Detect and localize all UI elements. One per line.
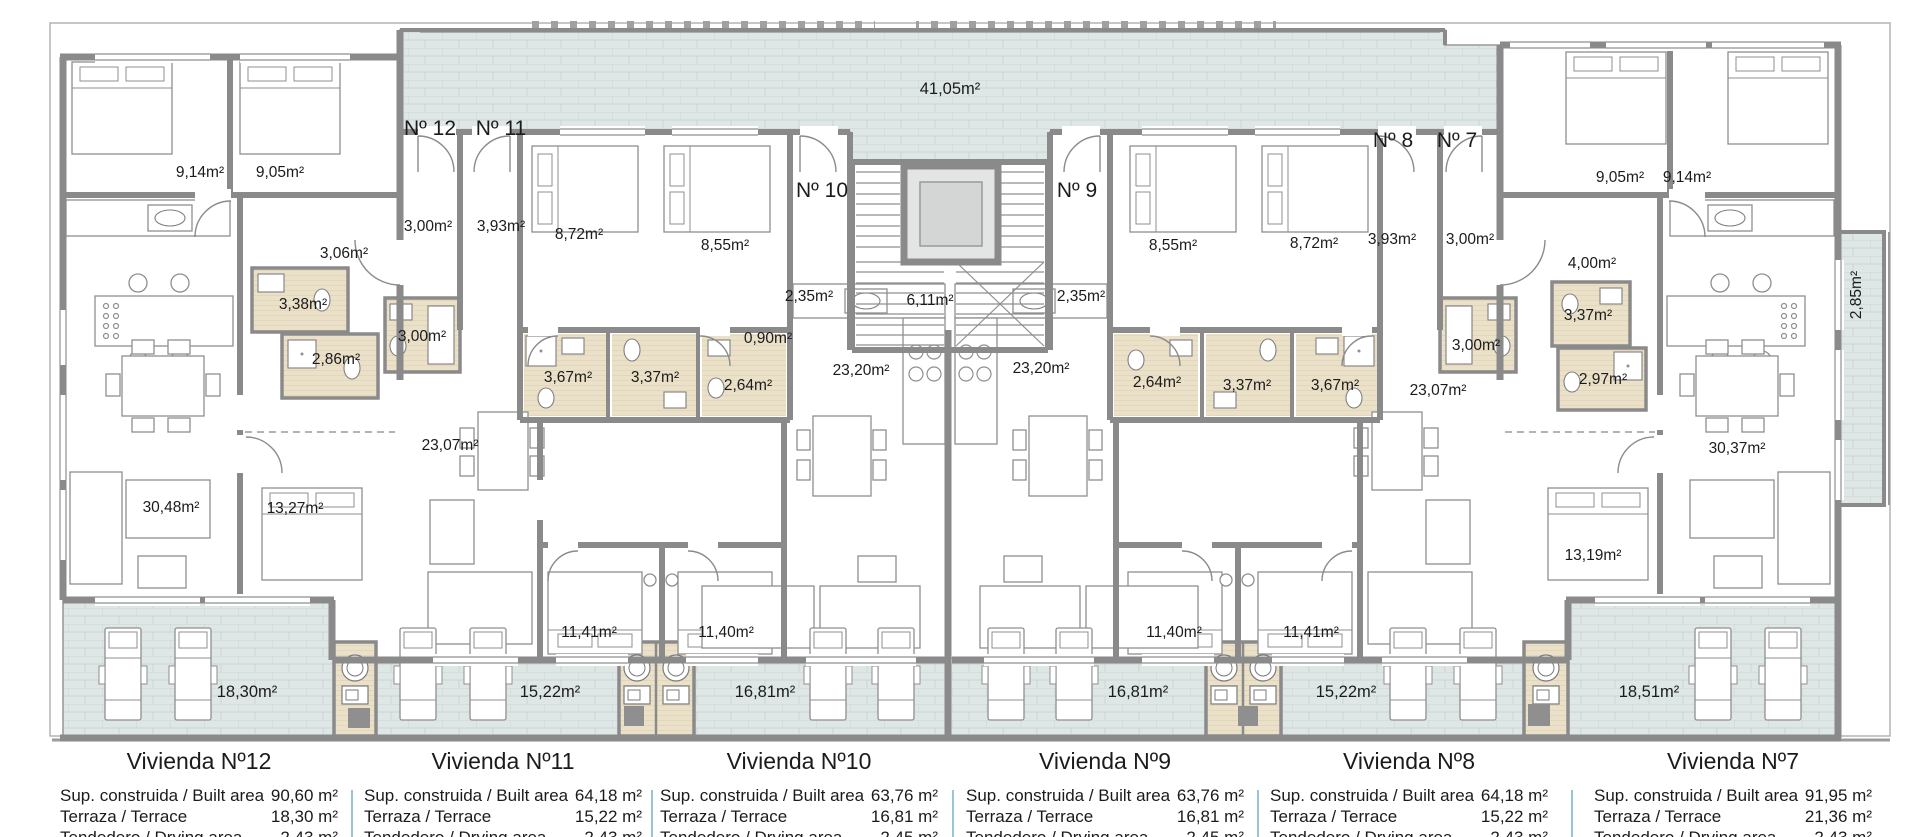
row3-label: Tendedero / Drying area xyxy=(660,827,842,837)
terrace-area-label: 15,22m² xyxy=(1316,683,1377,701)
unit-title: Vivienda Nº11 xyxy=(364,748,642,775)
row3: Tendedero / Drying area2,43 m² xyxy=(1594,827,1872,837)
room-area-label: 23,20m² xyxy=(1013,360,1070,377)
row3-label: Tendedero / Drying area xyxy=(966,827,1148,837)
terrace-area-label: 16,81m² xyxy=(735,683,796,701)
terrace-label: Terraza / Terrace xyxy=(966,806,1093,827)
terrace-area-label: 18,51m² xyxy=(1619,683,1680,701)
built-area-row: Sup. construida / Built area64,18 m² xyxy=(1270,785,1548,806)
room-area-label: 8,72m² xyxy=(1290,235,1338,252)
built-area-label: Sup. construida / Built area xyxy=(60,785,264,806)
terrace-area-label: 18,30m² xyxy=(217,683,278,701)
room-area-label: 6,11m² xyxy=(906,292,953,309)
unit-summary-col-11: Vivienda Nº11 Sup. construida / Built ar… xyxy=(364,748,642,837)
room-area-label: 8,72m² xyxy=(555,226,603,243)
unit-title: Vivienda Nº12 xyxy=(60,748,338,775)
terrace-value: 16,81 m² xyxy=(871,806,938,827)
row3: Tendedero / Drying area2,43 m² xyxy=(60,827,338,837)
room-area-label: 13,27m² xyxy=(267,500,324,517)
built-area-row: Sup. construida / Built area91,95 m² xyxy=(1594,785,1872,806)
room-area-label: 3,67m² xyxy=(544,369,592,386)
room-area-label: 3,00m² xyxy=(1446,231,1494,248)
column-divider xyxy=(651,790,653,837)
terrace-value: 15,22 m² xyxy=(575,806,642,827)
unit-title: Vivienda Nº8 xyxy=(1270,748,1548,775)
row3: Tendedero / Drying area2,43 m² xyxy=(364,827,642,837)
row3: Tendedero / Drying area2,43 m² xyxy=(1270,827,1548,837)
terrace-label: Terraza / Terrace xyxy=(364,806,491,827)
row3-value: 2,43 m² xyxy=(280,827,338,837)
row3-value: 2,43 m² xyxy=(1814,827,1872,837)
unit-summary-col-9: Vivienda Nº9 Sup. construida / Built are… xyxy=(966,748,1244,837)
row3-label: Tendedero / Drying area xyxy=(60,827,242,837)
room-area-label: 9,05m² xyxy=(1596,169,1644,186)
room-area-label: 8,55m² xyxy=(701,237,749,254)
column-divider xyxy=(1257,790,1259,837)
room-area-label: 3,93m² xyxy=(1368,231,1416,248)
terrace-row: Terraza / Terrace18,30 m² xyxy=(60,806,338,827)
unit-title: Vivienda Nº9 xyxy=(966,748,1244,775)
row3-label: Tendedero / Drying area xyxy=(364,827,546,837)
room-area-label: 11,41m² xyxy=(1283,624,1339,641)
built-area-row: Sup. construida / Built area63,76 m² xyxy=(660,785,938,806)
apartment-number: Nº 8 xyxy=(1373,129,1413,152)
built-area-value: 63,76 m² xyxy=(871,785,938,806)
unit-title: Vivienda Nº10 xyxy=(660,748,938,775)
room-area-label: 0,90m² xyxy=(744,330,792,347)
room-area-label: 11,41m² xyxy=(561,624,617,641)
built-area-label: Sup. construida / Built area xyxy=(1594,785,1798,806)
room-area-label: 11,40m² xyxy=(1146,624,1202,641)
built-area-value: 91,95 m² xyxy=(1805,785,1872,806)
built-area-row: Sup. construida / Built area64,18 m² xyxy=(364,785,642,806)
room-area-label: 8,55m² xyxy=(1149,237,1197,254)
apartment-number: Nº 10 xyxy=(796,179,848,202)
row3-label: Tendedero / Drying area xyxy=(1270,827,1452,837)
unit-summary-col-7: Vivienda Nº7 Sup. construida / Built are… xyxy=(1594,748,1872,837)
unit-summary-col-12: Vivienda Nº12 Sup. construida / Built ar… xyxy=(60,748,338,837)
terrace-area-label: 16,81m² xyxy=(1108,683,1169,701)
room-area-label: 3,37m² xyxy=(631,369,679,386)
built-area-value: 64,18 m² xyxy=(575,785,642,806)
terrace-label: Terraza / Terrace xyxy=(1270,806,1397,827)
row3-value: 2,43 m² xyxy=(584,827,642,837)
built-area-label: Sup. construida / Built area xyxy=(660,785,864,806)
built-area-value: 64,18 m² xyxy=(1481,785,1548,806)
room-area-label: 2,97m² xyxy=(1579,371,1627,388)
row3-value: 2,43 m² xyxy=(1490,827,1548,837)
unit-summary-col-8: Vivienda Nº8 Sup. construida / Built are… xyxy=(1270,748,1548,837)
room-area-label: 23,07m² xyxy=(1410,382,1467,399)
apartment-number: Nº 7 xyxy=(1437,129,1477,152)
row3-value: 2,45 m² xyxy=(880,827,938,837)
room-area-label: 3,37m² xyxy=(1223,377,1271,394)
room-area-label: 3,67m² xyxy=(1311,377,1359,394)
column-divider xyxy=(952,790,954,837)
room-area-label: 9,14m² xyxy=(1663,169,1711,186)
room-area-label: 3,38m² xyxy=(279,296,327,313)
room-area-label: 13,19m² xyxy=(1565,547,1622,564)
row3: Tendedero / Drying area2,45 m² xyxy=(660,827,938,837)
column-divider xyxy=(1571,790,1573,837)
room-area-label: 41,05m² xyxy=(920,80,981,98)
built-area-label: Sup. construida / Built area xyxy=(966,785,1170,806)
terrace-label: Terraza / Terrace xyxy=(660,806,787,827)
terrace-row: Terraza / Terrace21,36 m² xyxy=(1594,806,1872,827)
floor-plan: 9,14m² 9,05m² 3,06m² 3,38m² 2,86m² 30,48… xyxy=(0,0,1920,750)
room-area-label: 3,93m² xyxy=(477,218,525,235)
room-area-label: 4,00m² xyxy=(1568,255,1616,272)
built-area-row: Sup. construida / Built area90,60 m² xyxy=(60,785,338,806)
apartment-number: Nº 12 xyxy=(404,117,456,140)
unit-summary-table: Vivienda Nº12 Sup. construida / Built ar… xyxy=(0,748,1920,837)
room-area-label: 2,64m² xyxy=(1133,374,1181,391)
terrace-row: Terraza / Terrace16,81 m² xyxy=(966,806,1244,827)
room-area-label: 2,85m² xyxy=(1848,271,1865,319)
terrace-value: 16,81 m² xyxy=(1177,806,1244,827)
elevator xyxy=(904,166,998,262)
room-area-label: 9,05m² xyxy=(256,164,304,181)
apartment-number: Nº 9 xyxy=(1057,179,1097,202)
terrace-area-label: 15,22m² xyxy=(520,683,581,701)
room-area-label: 23,20m² xyxy=(833,362,890,379)
room-area-label: 30,48m² xyxy=(143,499,200,516)
built-area-row: Sup. construida / Built area63,76 m² xyxy=(966,785,1244,806)
room-area-label: 2,35m² xyxy=(785,288,833,305)
room-area-label: 2,64m² xyxy=(724,377,772,394)
terrace-row: Terraza / Terrace15,22 m² xyxy=(364,806,642,827)
terrace-value: 18,30 m² xyxy=(271,806,338,827)
apartment-number: Nº 11 xyxy=(476,117,526,140)
room-area-label: 2,35m² xyxy=(1057,288,1105,305)
room-area-label: 3,00m² xyxy=(1452,337,1500,354)
room-area-label: 23,07m² xyxy=(422,437,479,454)
room-area-label: 3,06m² xyxy=(320,245,368,262)
room-area-label: 2,86m² xyxy=(312,351,360,368)
room-area-label: 30,37m² xyxy=(1709,440,1766,457)
built-area-label: Sup. construida / Built area xyxy=(1270,785,1474,806)
terrace-label: Terraza / Terrace xyxy=(60,806,187,827)
room-area-label: 3,00m² xyxy=(398,328,446,345)
row3-label: Tendedero / Drying area xyxy=(1594,827,1776,837)
built-area-value: 90,60 m² xyxy=(271,785,338,806)
built-area-label: Sup. construida / Built area xyxy=(364,785,568,806)
terrace-row: Terraza / Terrace16,81 m² xyxy=(660,806,938,827)
terrace-row: Terraza / Terrace15,22 m² xyxy=(1270,806,1548,827)
built-area-value: 63,76 m² xyxy=(1177,785,1244,806)
room-area-label: 9,14m² xyxy=(176,164,224,181)
row3-value: 2,45 m² xyxy=(1186,827,1244,837)
terrace-label: Terraza / Terrace xyxy=(1594,806,1721,827)
terrace-value: 15,22 m² xyxy=(1481,806,1548,827)
unit-summary-col-10: Vivienda Nº10 Sup. construida / Built ar… xyxy=(660,748,938,837)
row3: Tendedero / Drying area2,45 m² xyxy=(966,827,1244,837)
room-area-label: 3,00m² xyxy=(404,218,452,235)
unit-title: Vivienda Nº7 xyxy=(1594,748,1872,775)
column-divider xyxy=(351,790,353,837)
room-area-label: 3,37m² xyxy=(1564,307,1612,324)
room-area-label: 11,40m² xyxy=(698,624,754,641)
terrace-value: 21,36 m² xyxy=(1805,806,1872,827)
